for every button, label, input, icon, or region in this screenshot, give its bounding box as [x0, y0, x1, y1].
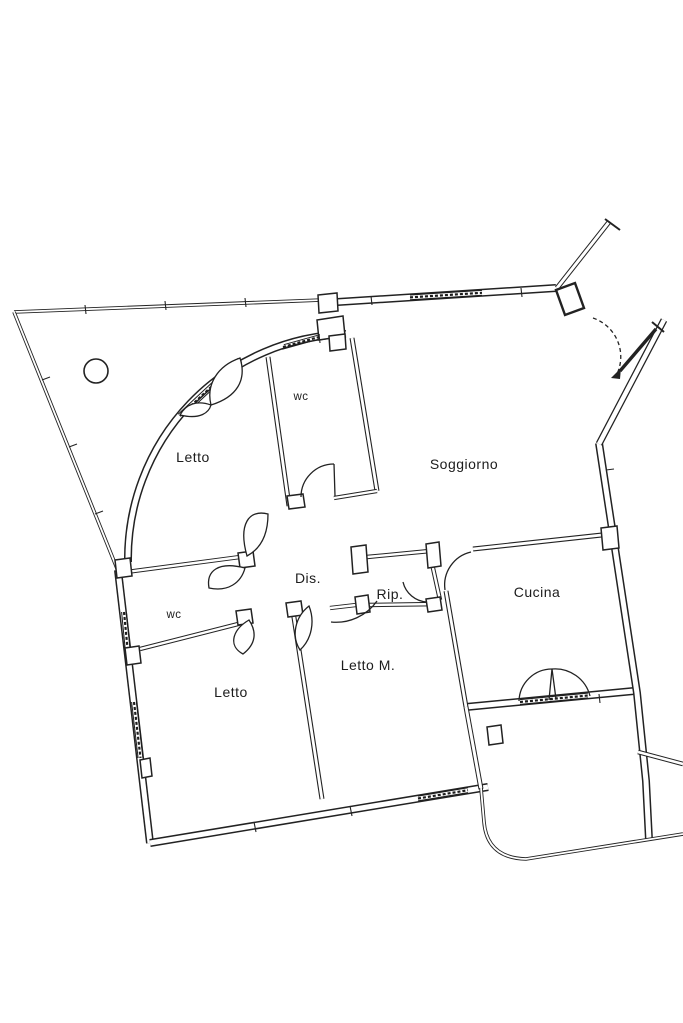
label-wc-low: wc	[165, 609, 181, 621]
label-rip: Rip.	[377, 586, 404, 602]
label-dis: Dis.	[295, 570, 321, 586]
entrance-jamb-block	[556, 283, 584, 315]
label-letto-top: Letto	[176, 449, 210, 465]
terrace-parapet-top-inner	[14, 300, 322, 312]
balcony-pillar	[487, 725, 503, 745]
label-letto-low: Letto	[214, 684, 248, 700]
joint-right-wall	[601, 526, 619, 550]
door-arc-wc-top	[301, 464, 334, 497]
door-leaf-dis-up	[244, 513, 268, 556]
wall-cucina-left-inner	[446, 591, 466, 707]
french-door-leaf-right	[552, 669, 556, 699]
walls	[14, 222, 683, 859]
floor-plan-drawing: Letto wc Soggiorno Dis. Rip. Cucina wc L…	[0, 0, 683, 1023]
label-letto-m: Letto M.	[341, 657, 396, 673]
door-arc-cucina	[445, 552, 471, 590]
terrace-column	[84, 359, 108, 383]
wall-right-inner	[599, 443, 649, 840]
joint-curve-left-end	[115, 558, 132, 578]
doors	[180, 219, 664, 701]
door-leaf-dis-left	[209, 566, 245, 589]
jamb-rip-left-top	[351, 545, 368, 574]
door-leaf-wc-top	[334, 464, 335, 496]
entrance-swing-arc	[593, 318, 621, 376]
wall-wc-top-right-inner	[352, 338, 377, 491]
wall-corridor-upper-inner	[557, 222, 609, 288]
wall-wc-top-bottom-b-inner	[334, 491, 377, 498]
wall-joints	[115, 283, 619, 778]
joint-top-left-step-b	[329, 334, 346, 351]
joint-left-wall-a	[125, 646, 141, 665]
door-arc-rip	[403, 582, 427, 602]
door-leaf-terrace-a	[210, 358, 242, 405]
wall-entry-diagonal-inner	[599, 320, 664, 444]
joint-terrace-corner	[318, 293, 338, 313]
jamb-wc-top-door	[287, 494, 305, 509]
wall-wc-top-left-inner	[268, 357, 289, 506]
wall-left-inner	[118, 570, 150, 843]
wall-edge-balcony-left-inner	[466, 707, 481, 789]
label-cucina: Cucina	[514, 584, 561, 600]
label-soggiorno: Soggiorno	[430, 456, 498, 472]
joint-left-wall-b	[140, 758, 152, 778]
floor-plan-page: Letto wc Soggiorno Dis. Rip. Cucina wc L…	[0, 0, 683, 1023]
wall-wc-low-bottom-inner	[140, 622, 246, 649]
jamb-rip-right-bottom	[426, 597, 442, 612]
entrance-door	[593, 219, 664, 379]
label-wc-top: wc	[292, 391, 308, 403]
balcony-parapet	[481, 788, 683, 859]
wall-cucina-top-inner	[473, 534, 611, 549]
terrace-parapet-left-inner	[14, 312, 118, 571]
jamb-rip-right-top	[426, 542, 441, 568]
